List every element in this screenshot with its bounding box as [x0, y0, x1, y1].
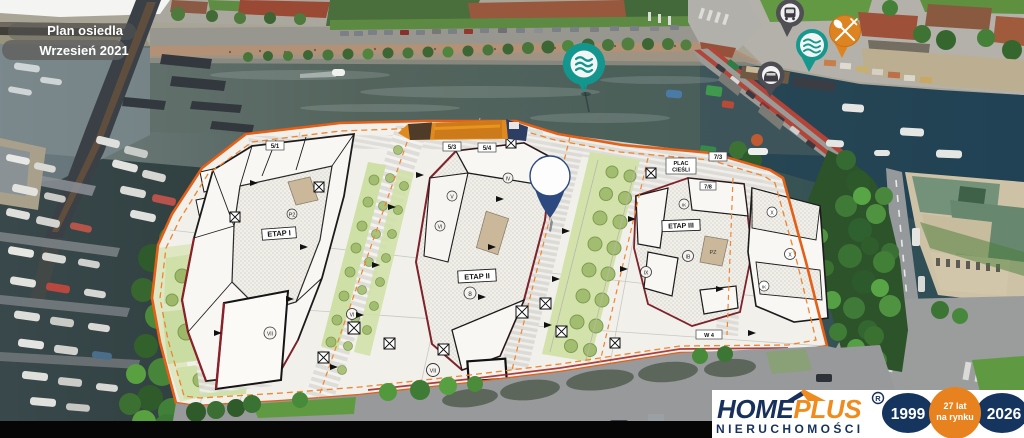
- svg-text:5/4: 5/4: [483, 146, 492, 152]
- svg-text:ETAP I: ETAP I: [267, 228, 291, 239]
- svg-text:Wrzesień 2021: Wrzesień 2021: [39, 43, 128, 58]
- svg-text:1999: 1999: [891, 406, 926, 423]
- svg-text:7/3: 7/3: [714, 155, 723, 161]
- svg-text:IK: IK: [682, 203, 686, 208]
- svg-text:IX: IX: [644, 271, 649, 277]
- svg-text:W 4: W 4: [704, 333, 715, 339]
- svg-text:5/3: 5/3: [448, 145, 457, 151]
- svg-text:27 lat: 27 lat: [943, 401, 966, 411]
- svg-text:CIEŚLI: CIEŚLI: [672, 167, 690, 174]
- svg-text:NIERUCHOMOŚCI: NIERUCHOMOŚCI: [716, 421, 864, 436]
- svg-text:VI: VI: [438, 225, 443, 231]
- svg-text:na rynku: na rynku: [936, 412, 974, 422]
- svg-text:ETAP III: ETAP III: [668, 223, 694, 231]
- svg-text:PLAC: PLAC: [674, 161, 689, 167]
- svg-text:8: 8: [468, 291, 472, 298]
- svg-text:R: R: [875, 394, 881, 403]
- svg-text:IB: IB: [686, 255, 691, 261]
- svg-text:5/1: 5/1: [271, 144, 280, 150]
- svg-text:IV: IV: [506, 177, 511, 183]
- svg-text:VI: VI: [350, 313, 355, 319]
- svg-text:2026: 2026: [987, 406, 1022, 423]
- svg-text:HOMEPLUS: HOMEPLUS: [717, 394, 862, 424]
- svg-text:IK: IK: [762, 285, 766, 290]
- svg-text:ETAP II: ETAP II: [464, 271, 490, 281]
- svg-text:PZ: PZ: [709, 250, 717, 256]
- svg-text:7/8: 7/8: [704, 185, 712, 191]
- svg-text:Plan osiedla: Plan osiedla: [47, 23, 124, 38]
- svg-text:VII: VII: [267, 332, 273, 338]
- svg-text:P2: P2: [289, 213, 296, 219]
- svg-text:VII: VII: [430, 369, 437, 375]
